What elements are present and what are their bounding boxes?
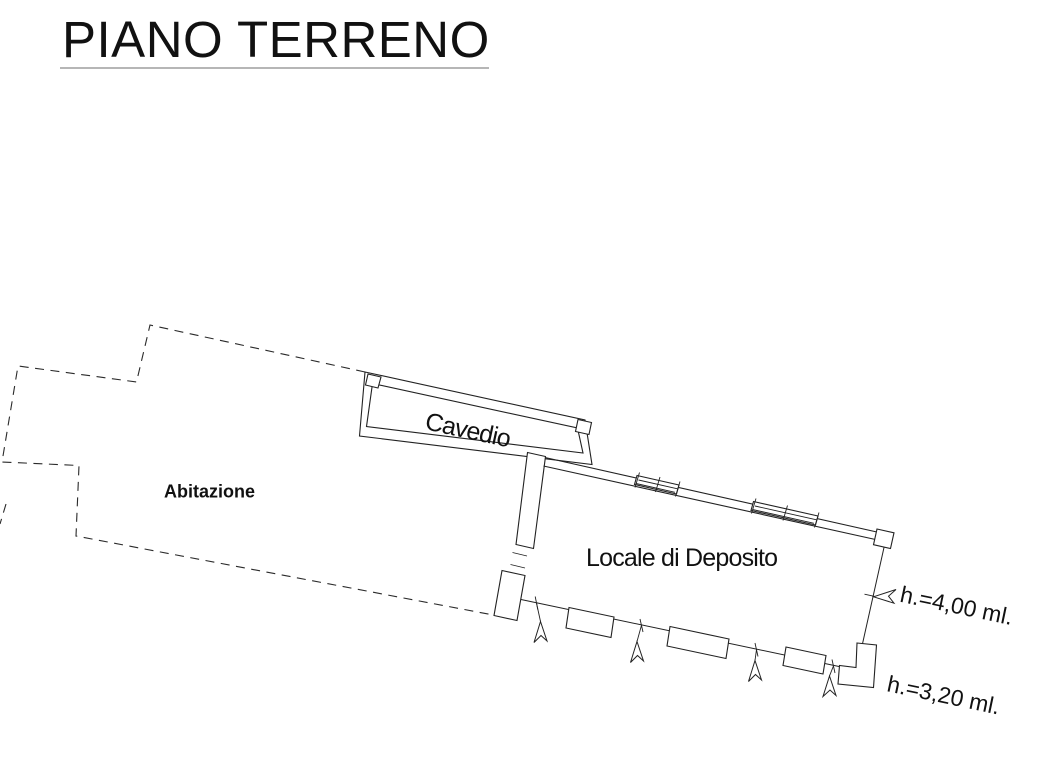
- page-title: PIANO TERRENO: [62, 11, 490, 68]
- floor-plan-svg: PIANO TERRENO Abitazione Cavedio: [0, 0, 1038, 763]
- deposito-right-side: [838, 548, 884, 688]
- window-symbol-2: [751, 499, 819, 528]
- height-secondary-label: h.=3,20 ml.: [885, 670, 1002, 719]
- top-wall-end-pillar: [874, 529, 895, 549]
- colonnade-pillar: [566, 608, 614, 638]
- corner-l-pillar: [838, 643, 877, 688]
- door-jamb-tick: [511, 565, 526, 569]
- drawing-sheet: PIANO TERRENO Abitazione Cavedio: [0, 0, 1038, 763]
- left-corner-pillar: [494, 571, 525, 621]
- deposito-label: Locale di Deposito: [586, 544, 777, 572]
- height-annotation-main: h.=4,00 ml.: [874, 581, 1016, 630]
- entrance-arrow-icon: [749, 650, 762, 682]
- cavedio-pilaster-topright: [576, 420, 592, 435]
- height-annotation-secondary: h.=3,20 ml.: [885, 670, 1002, 719]
- colonnade-pillar: [667, 627, 729, 659]
- cavedio-label: Cavedio: [423, 408, 513, 454]
- top-wall-inner-line: [544, 466, 885, 542]
- deposito-bottom-colonnade: [521, 597, 839, 697]
- deposito-left-wall: [494, 453, 546, 621]
- entrance-arrow-icon: [631, 625, 644, 662]
- window-symbol-1: [635, 473, 681, 497]
- entrance-arrow-icon: [534, 603, 547, 642]
- abitazione-outline: [0, 325, 496, 616]
- top-wall-outer-line: [545, 458, 888, 535]
- door-jamb-tick: [513, 553, 528, 557]
- colonnade-pillar: [783, 647, 826, 674]
- abitazione-label: Abitazione: [164, 482, 255, 502]
- leader-arrow-icon: [874, 590, 897, 604]
- height-main-label: h.=4,00 ml.: [898, 581, 1015, 630]
- deposito-top-wall: [544, 458, 895, 549]
- cavedio-pilaster-topleft: [366, 374, 382, 388]
- left-wall-segment: [516, 453, 546, 549]
